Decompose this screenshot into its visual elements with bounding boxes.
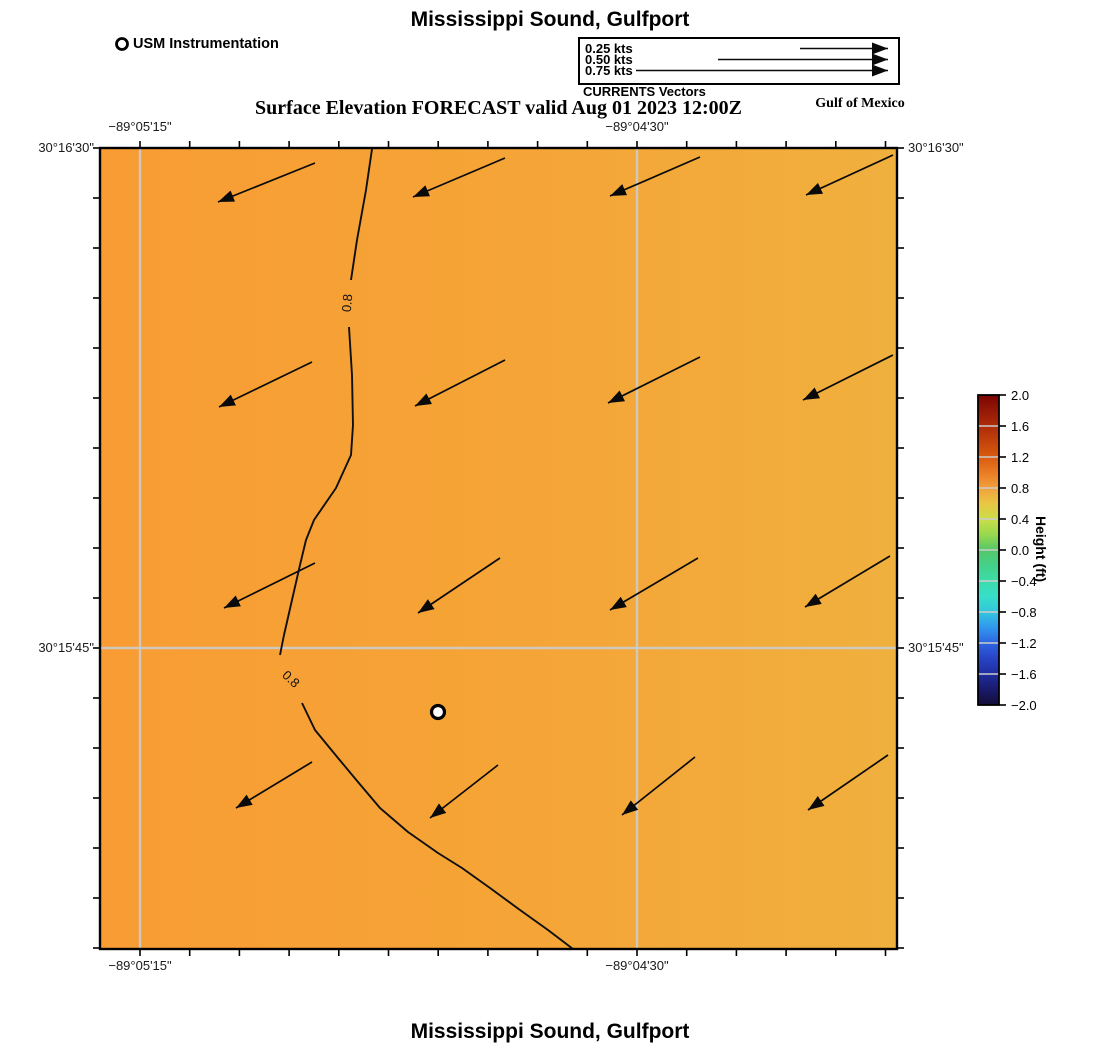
lon-tick-label-top: −89°05'15" [60,119,220,134]
lat-tick-label-right: 30°16'30" [908,141,998,155]
region-label: Gulf of Mexico [780,96,940,112]
lat-tick-label-right: 30°15'45" [908,641,998,655]
colorbar-tick-label: −0.4 [1011,574,1057,589]
colorbar-tick-label: 0.8 [1011,481,1057,496]
contour-label: 0.8 [339,293,356,312]
colorbar-tick-label: 1.6 [1011,419,1057,434]
lon-tick-label-top: −89°04'30" [557,119,717,134]
plot-svg [0,0,1100,1050]
colorbar-tick-label: 0.4 [1011,512,1057,527]
map-background [100,148,897,949]
colorbar-tick-label: −1.2 [1011,636,1057,651]
station-marker [432,706,445,719]
currents-legend-item: 0.75 kts [585,64,633,77]
colorbar-tick-label: −2.0 [1011,698,1057,713]
figure-title-bottom: Mississippi Sound, Gulfport [0,1020,1100,1044]
forecast-subtitle: Surface Elevation FORECAST valid Aug 01 … [100,97,897,120]
figure-canvas: Mississippi Sound, Gulfport USM Instrume… [0,0,1100,1050]
map-group [93,141,904,956]
station-legend-label: USM Instrumentation [133,36,279,52]
lon-tick-label-bottom: −89°04'30" [557,958,717,973]
figure-title: Mississippi Sound, Gulfport [0,8,1100,32]
lat-tick-label-left: 30°15'45" [18,641,94,655]
colorbar-group [978,395,1006,705]
lat-tick-label-left: 30°16'30" [18,141,94,155]
colorbar-tick-label: −1.6 [1011,667,1057,682]
colorbar-tick-label: 0.0 [1011,543,1057,558]
colorbar-tick-label: −0.8 [1011,605,1057,620]
colorbar-tick-label: 2.0 [1011,388,1057,403]
station-legend-marker [117,39,128,50]
colorbar-tick-label: 1.2 [1011,450,1057,465]
lon-tick-label-bottom: −89°05'15" [60,958,220,973]
